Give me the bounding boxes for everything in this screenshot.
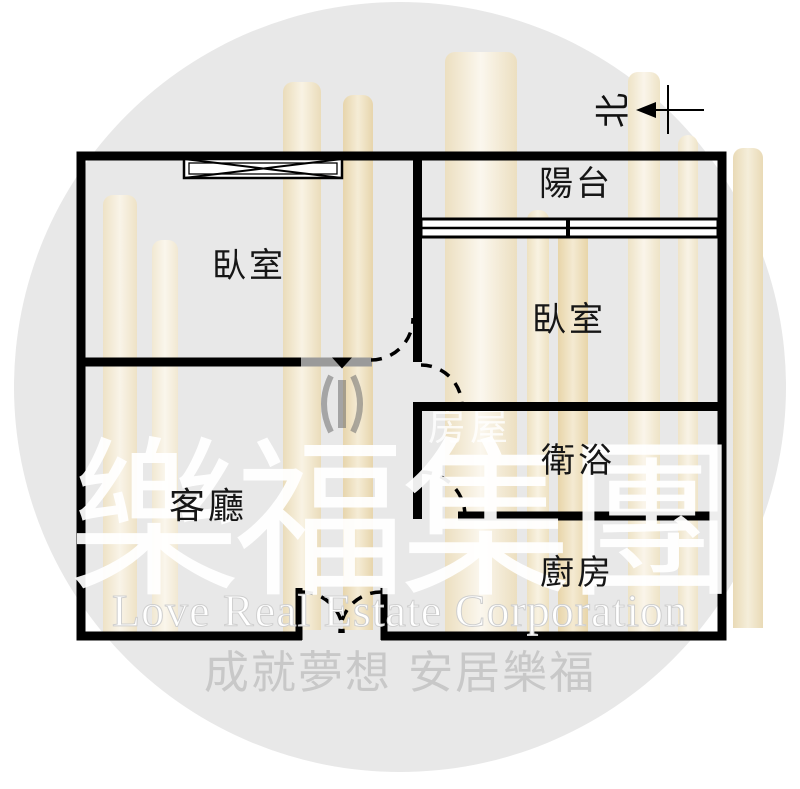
watermark-brand-cn: 樂福集團	[68, 436, 732, 608]
floor-plan-page: 房屋	[0, 0, 800, 789]
north-label: 北	[597, 93, 632, 128]
room-label-bedroom-2: 臥室	[532, 303, 606, 337]
watermark-slogan: 成就夢想 安居樂福	[204, 650, 596, 695]
door-arc-bedroom2	[421, 365, 462, 406]
sliding-door-symbol	[421, 219, 718, 237]
window-symbol	[184, 159, 342, 178]
north-indicator	[636, 85, 704, 134]
room-label-living-room: 客廳	[169, 489, 247, 525]
room-label-bathroom: 衛浴	[541, 444, 615, 478]
room-label-kitchen: 廚房	[540, 556, 614, 590]
watermark-brand-en: Love Real Estate Corporation	[112, 588, 688, 634]
room-label-bedroom-1: 臥室	[212, 249, 286, 283]
door-arc-bedroom1	[371, 318, 413, 360]
room-label-balcony: 陽台	[539, 167, 613, 201]
north-arrowhead-icon	[636, 102, 656, 118]
